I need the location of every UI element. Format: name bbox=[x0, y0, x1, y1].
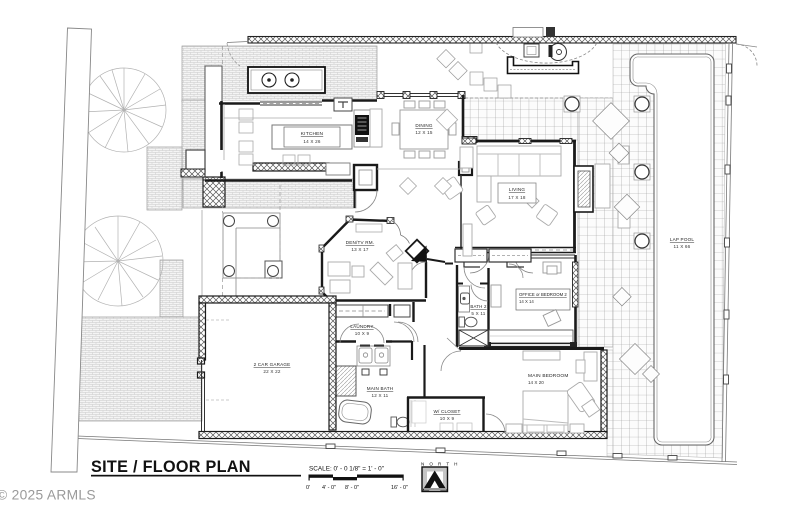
svg-text:LIVING: LIVING bbox=[509, 187, 525, 192]
svg-text:MAIN BATH: MAIN BATH bbox=[367, 386, 393, 391]
svg-text:17 X 18: 17 X 18 bbox=[508, 195, 525, 200]
svg-text:14 X 20: 14 X 20 bbox=[528, 380, 544, 385]
svg-text:16' - 0": 16' - 0" bbox=[391, 485, 408, 491]
svg-text:11 X 66: 11 X 66 bbox=[674, 244, 691, 249]
svg-text:SITE / FLOOR PLAN: SITE / FLOOR PLAN bbox=[91, 458, 251, 476]
svg-text:OFFICE or BEDROOM 2: OFFICE or BEDROOM 2 bbox=[519, 292, 567, 297]
svg-text:LAP POOL: LAP POOL bbox=[670, 237, 694, 242]
svg-text:10 X 9: 10 X 9 bbox=[440, 416, 455, 421]
svg-text:10 X 9: 10 X 9 bbox=[355, 331, 370, 336]
svg-text:12 X 11: 12 X 11 bbox=[372, 393, 389, 398]
svg-text:DEN/TV RM.: DEN/TV RM. bbox=[346, 240, 375, 245]
svg-text:13 X 17: 13 X 17 bbox=[351, 247, 368, 252]
svg-text:5 X 11: 5 X 11 bbox=[471, 311, 485, 316]
svg-text:8' - 0": 8' - 0" bbox=[345, 485, 359, 491]
svg-text:BATH 2: BATH 2 bbox=[470, 304, 487, 309]
svg-text:0': 0' bbox=[306, 485, 310, 491]
svg-text:22 X 22: 22 X 22 bbox=[263, 369, 280, 374]
svg-text:4' - 0": 4' - 0" bbox=[322, 485, 336, 491]
svg-text:LAUNDRY: LAUNDRY bbox=[350, 324, 373, 329]
svg-text:W/ CLOSET: W/ CLOSET bbox=[433, 409, 460, 414]
svg-text:14 X 14: 14 X 14 bbox=[519, 299, 534, 304]
svg-text:N O R T H: N O R T H bbox=[421, 462, 459, 467]
svg-text:DINING: DINING bbox=[415, 123, 433, 128]
svg-text:KITCHEN: KITCHEN bbox=[301, 131, 324, 137]
svg-text:MAIN BEDROOM: MAIN BEDROOM bbox=[528, 373, 569, 379]
svg-text:2 CAR GARAGE: 2 CAR GARAGE bbox=[254, 362, 291, 367]
svg-text:SCALE: 0' - 0 1/8" = 1' - 0": SCALE: 0' - 0 1/8" = 1' - 0" bbox=[309, 466, 384, 473]
svg-text:© 2025 ARMLS: © 2025 ARMLS bbox=[0, 488, 96, 503]
svg-text:12 X 15: 12 X 15 bbox=[415, 130, 432, 135]
svg-text:14 X 26: 14 X 26 bbox=[303, 139, 320, 144]
